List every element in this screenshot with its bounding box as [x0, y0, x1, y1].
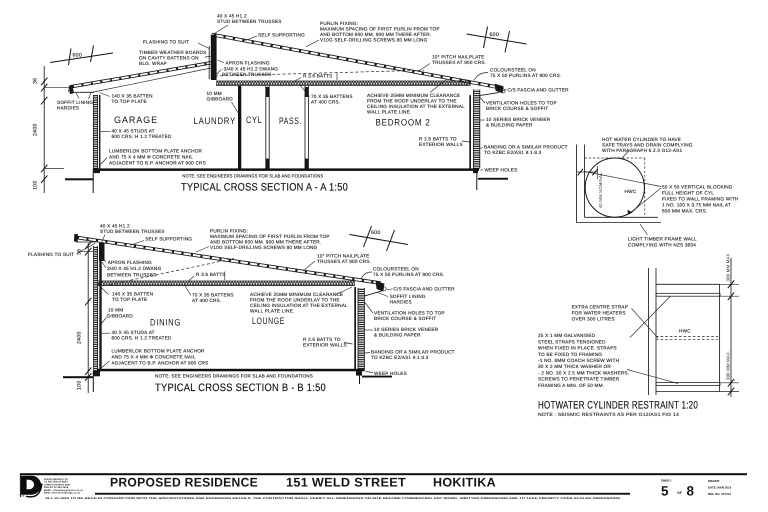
- svg-text:8: 8: [687, 484, 695, 499]
- svg-text:WEB: www.dixondesign.co.nz: WEB: www.dixondesign.co.nz: [44, 492, 81, 495]
- svg-text:TIMBER WEATHER BOARDS: TIMBER WEATHER BOARDS: [139, 50, 206, 55]
- svg-text:LIGHT TIMBER FRAME WALL: LIGHT TIMBER FRAME WALL: [628, 237, 697, 242]
- svg-text:MAXIMUM SPACING OF FIRST PURLI: MAXIMUM SPACING OF FIRST PURLIN FROM TOP: [210, 234, 330, 239]
- svg-text:40 X 45 H1.2: 40 X 45 H1.2: [100, 223, 130, 228]
- svg-text:ACHIEVE 25MM MINIMUM CLEARANCE: ACHIEVE 25MM MINIMUM CLEARANCE: [250, 292, 343, 297]
- svg-text:V10G SELF-DRILLING SCREWS 80 M: V10G SELF-DRILLING SCREWS 80 MM LONG: [210, 245, 318, 250]
- svg-text:TO TOP PLATE: TO TOP PLATE: [112, 297, 147, 302]
- svg-text:BANDING OR A SIMILAR PRODUCT: BANDING OR A SIMILAR PRODUCT: [484, 145, 568, 150]
- svg-text:600 CRS. H 1.2 TREATED: 600 CRS. H 1.2 TREATED: [112, 134, 172, 139]
- svg-text:LUMBERLOK BOTTOM PLATE ANCHOR: LUMBERLOK BOTTOM PLATE ANCHOR: [112, 349, 206, 354]
- svg-text:CYL: CYL: [246, 114, 263, 125]
- svg-text:LOUNGE: LOUNGE: [252, 315, 285, 326]
- svg-text:30 X 2 MM THICK WASHER OR: 30 X 2 MM THICK WASHER OR: [538, 364, 611, 369]
- svg-text:LUMBERLOK BOTTOM PLATE ANCHOR: LUMBERLOK BOTTOM PLATE ANCHOR: [109, 149, 203, 154]
- svg-text:WEEP HOLES: WEEP HOLES: [485, 168, 518, 173]
- svg-text:PASS.: PASS.: [279, 115, 302, 126]
- svg-text:FLASHING TO SUIT: FLASHING TO SUIT: [143, 39, 189, 44]
- svg-text:OF: OF: [677, 491, 683, 495]
- svg-text:25 X 1 MM GALVANISED: 25 X 1 MM GALVANISED: [538, 333, 596, 338]
- svg-text:10 MM: 10 MM: [207, 91, 222, 96]
- svg-text:10 MM: 10 MM: [108, 308, 123, 313]
- svg-text:36: 36: [33, 78, 39, 84]
- svg-text:AND 75 X 4 MM Φ CONCRETE NAIL: AND 75 X 4 MM Φ CONCRETE NAIL: [109, 155, 193, 160]
- svg-text:SELF SUPPORTING: SELF SUPPORTING: [258, 32, 305, 37]
- svg-text:2400: 2400: [77, 331, 83, 344]
- svg-text:MAXIMUM SPACING OF FIRST PURLI: MAXIMUM SPACING OF FIRST PURLIN FROM TOP: [320, 26, 440, 31]
- svg-text:COMPLYING WITH NZS 3604: COMPLYING WITH NZS 3604: [628, 243, 696, 248]
- svg-text:R 2.6 BATTS TO: R 2.6 BATTS TO: [303, 337, 341, 342]
- svg-text:WEEP HOLES: WEEP HOLES: [374, 371, 407, 376]
- svg-text:-1 NO. 8MM COACH SCREW WITH: -1 NO. 8MM COACH SCREW WITH: [538, 358, 619, 363]
- svg-text:40 X 45 STUDS AT: 40 X 45 STUDS AT: [112, 330, 155, 335]
- svg-text:FOR WATER HEATERS: FOR WATER HEATERS: [572, 311, 626, 316]
- svg-text:300 MM MAX.: 300 MM MAX.: [726, 351, 731, 380]
- svg-text:10 SERIES BRICK VENEER: 10 SERIES BRICK VENEER: [374, 327, 439, 332]
- svg-text:ON CAVITY BATTENS ON: ON CAVITY BATTENS ON: [139, 55, 199, 60]
- svg-text:100: 100: [33, 180, 39, 190]
- svg-text:TO BE FIXED TO FRAMING: TO BE FIXED TO FRAMING: [538, 352, 602, 357]
- svg-text:PURLIN FIXING:: PURLIN FIXING:: [320, 21, 358, 26]
- svg-text:HOT WATER CYLINDER TO HAVE: HOT WATER CYLINDER TO HAVE: [602, 137, 681, 142]
- svg-text:50 X 50 VERTICAL BLOCKING: 50 X 50 VERTICAL BLOCKING: [662, 184, 733, 189]
- svg-text:APRON FLASHING: APRON FLASHING: [226, 60, 270, 65]
- svg-text:DATE: MAR 2018: DATE: MAR 2018: [708, 485, 732, 489]
- svg-text:SCREWS TO PENETRATE TIMBER: SCREWS TO PENETRATE TIMBER: [538, 377, 620, 382]
- svg-text:LAUNDRY: LAUNDRY: [194, 115, 237, 126]
- svg-text:75 X 50 PURLINS AT 900 CRS.: 75 X 50 PURLINS AT 900 CRS.: [490, 73, 561, 78]
- svg-text:TRUSSES AT 900 CRS.: TRUSSES AT 900 CRS.: [317, 259, 371, 264]
- svg-text:EXTERIOR WALLS: EXTERIOR WALLS: [303, 343, 347, 348]
- svg-text:SELF SUPPORTING: SELF SUPPORTING: [145, 236, 192, 241]
- svg-text:NOTE: SEE ENGINEERS DRAWINGS F: NOTE: SEE ENGINEERS DRAWINGS FOR SLAB AN…: [182, 174, 323, 179]
- svg-text:BETWEEN TRUSSES: BETWEEN TRUSSES: [222, 72, 272, 77]
- svg-text:10° PITCH NAILPLATE: 10° PITCH NAILPLATE: [432, 54, 484, 59]
- svg-text:TO KZBC E2/AS1 9.1.8.3: TO KZBC E2/AS1 9.1.8.3: [371, 355, 429, 360]
- svg-text:- 2 NO. 30 X 2.5 MM THICK WASH: - 2 NO. 30 X 2.5 MM THICK WASHERS.: [538, 370, 629, 375]
- svg-text:DINING: DINING: [150, 317, 181, 328]
- svg-text:PH/FAX 03 385 2658: PH/FAX 03 385 2658: [44, 486, 69, 489]
- svg-text:C/S FASCIA AND GUTTER: C/S FASCIA AND GUTTER: [508, 87, 570, 92]
- svg-text:SAFE TRAYS AND DRAIN COMPLYING: SAFE TRAYS AND DRAIN COMPLYING: [602, 142, 693, 147]
- svg-text:AND BOTTOM 600 MM. 900 MM THER: AND BOTTOM 600 MM. 900 MM THERE AFTER.: [210, 239, 321, 244]
- svg-text:CEILING INSULATION AT THE EXTE: CEILING INSULATION AT THE EXTERNAL: [367, 104, 465, 109]
- svg-text:R 3.6 BATTS: R 3.6 BATTS: [303, 74, 332, 79]
- svg-text:SHEET:: SHEET:: [661, 479, 672, 483]
- svg-text:EXTERIOR WALLS: EXTERIOR WALLS: [419, 142, 463, 147]
- svg-text:GIBBOARD: GIBBOARD: [207, 96, 234, 101]
- svg-text:151 WELD STREET: 151 WELD STREET: [286, 476, 406, 490]
- svg-text:V10G SELF-DRILLING SCREWS 80 M: V10G SELF-DRILLING SCREWS 80 MM LONG: [320, 37, 428, 42]
- svg-text:PURLIN FIXING:: PURLIN FIXING:: [210, 228, 248, 233]
- svg-text:STUD BETWEEN TRUSSES: STUD BETWEEN TRUSSES: [100, 229, 165, 234]
- svg-text:HOTWATER CYLINDER RESTRAINT 1:: HOTWATER CYLINDER RESTRAINT 1:20: [538, 400, 698, 412]
- svg-text:AT 400 CRS.: AT 400 CRS.: [192, 298, 221, 303]
- svg-text:FLASHING TO SUIT: FLASHING TO SUIT: [28, 252, 74, 257]
- svg-text:ADJACENT TO B.P. ANCHOR AT 900: ADJACENT TO B.P. ANCHOR AT 900 CRS: [109, 160, 206, 165]
- svg-text:SOFFIT LINING: SOFFIT LINING: [390, 294, 426, 299]
- svg-text:40 X 45 STUDS AT: 40 X 45 STUDS AT: [112, 128, 155, 133]
- svg-text:& BUILDING PAPER: & BUILDING PAPER: [374, 333, 421, 338]
- svg-text:NOTE : SEISMIC RESTRAINTS AS P: NOTE : SEISMIC RESTRAINTS AS PER G12/AS1…: [538, 412, 679, 417]
- svg-text:BETWEEN TRUSSES: BETWEEN TRUSSES: [107, 273, 157, 278]
- svg-text:300 MM MAX.: 300 MM MAX.: [726, 252, 731, 281]
- svg-text:2400: 2400: [33, 123, 39, 136]
- svg-text:LTD: LTD: [21, 495, 25, 498]
- svg-text:140 X 35 BATTEN: 140 X 35 BATTEN: [112, 291, 153, 296]
- svg-text:600: 600: [490, 32, 500, 38]
- svg-text:40 X 45 H1.2: 40 X 45 H1.2: [217, 13, 247, 18]
- svg-text:FRAMING A MIN. OF 50 MM.: FRAMING A MIN. OF 50 MM.: [538, 383, 604, 388]
- svg-text:ADJACENT TO B.P. ANCHOR AT 900: ADJACENT TO B.P. ANCHOR AT 900 CRS: [112, 360, 209, 365]
- svg-text:600: 600: [371, 230, 381, 236]
- svg-text:WHEN FIXED IN PLACE. STRAPS: WHEN FIXED IN PLACE. STRAPS: [538, 346, 617, 351]
- svg-text:REF. NO: 201704: REF. NO: 201704: [708, 492, 731, 496]
- svg-text:140 X 35 BATTEN: 140 X 35 BATTEN: [112, 93, 153, 98]
- svg-text:HARDIES: HARDIES: [390, 300, 412, 305]
- svg-text:40 MM NOMINAL: 40 MM NOMINAL: [598, 172, 603, 208]
- svg-text:HARDIES: HARDIES: [57, 105, 79, 110]
- svg-text:600 CRS. H 1.2 TREATED: 600 CRS. H 1.2 TREATED: [112, 336, 172, 341]
- svg-text:FROM THE ROOF UNDERLAY TO THE: FROM THE ROOF UNDERLAY TO THE: [250, 298, 340, 303]
- svg-text:PROPOSED RESIDENCE: PROPOSED RESIDENCE: [110, 476, 258, 490]
- svg-text:100: 100: [77, 380, 83, 390]
- svg-text:75 X 50 PURLINS AT 900 CRS.: 75 X 50 PURLINS AT 900 CRS.: [373, 272, 444, 277]
- svg-text:BANDING OR A SIMILAR PRODUCT: BANDING OR A SIMILAR PRODUCT: [371, 350, 455, 355]
- svg-text:FULL HEIGHT OF CYL: FULL HEIGHT OF CYL: [662, 190, 714, 195]
- svg-text:HWC: HWC: [625, 189, 637, 194]
- svg-text:CHRISTCHURCH 8081: CHRISTCHURCH 8081: [44, 483, 71, 486]
- svg-text:BRICK COURSE & SOFFIT: BRICK COURSE & SOFFIT: [486, 106, 548, 111]
- svg-text:HWC: HWC: [679, 328, 691, 333]
- svg-text:FIXED TO WALL FRAMING WITH: FIXED TO WALL FRAMING WITH: [662, 196, 739, 201]
- svg-text:DIXON DESIGN LTD: DIXON DESIGN LTD: [44, 478, 68, 481]
- svg-text:OVER 300 LITRES: OVER 300 LITRES: [572, 317, 615, 322]
- svg-text:SOFFIT LINING: SOFFIT LINING: [57, 100, 93, 105]
- svg-text:COLOURSTEEL ON: COLOURSTEEL ON: [490, 67, 536, 72]
- svg-text:& BUILDING PAPER: & BUILDING PAPER: [486, 123, 533, 128]
- svg-text:WITH PARAGRAPH 6.2.3 G12-AS1: WITH PARAGRAPH 6.2.3 G12-AS1: [602, 148, 682, 153]
- svg-text:3/40 X 45 H1.2 DWANG: 3/40 X 45 H1.2 DWANG: [107, 266, 162, 271]
- svg-text:NOTE: SEE ENGINEERS DRAWINGS F: NOTE: SEE ENGINEERS DRAWINGS FOR SLAB AN…: [155, 373, 313, 378]
- svg-text:10° PITCH NAILPLATE: 10° PITCH NAILPLATE: [317, 253, 369, 258]
- svg-text:BLG. WRAP: BLG. WRAP: [139, 61, 167, 66]
- svg-text:5: 5: [661, 484, 669, 499]
- svg-text:APRON FLASHING: APRON FLASHING: [108, 260, 152, 265]
- svg-text:STUD BETWEEN TRUSSES: STUD BETWEEN TRUSSES: [217, 19, 282, 24]
- svg-text:C/S FASCIA AND GUTTER: C/S FASCIA AND GUTTER: [394, 286, 456, 291]
- svg-text:WALL PLATE LINE.: WALL PLATE LINE.: [250, 309, 294, 314]
- svg-text:600 MM MAX. CRS.: 600 MM MAX. CRS.: [662, 208, 707, 213]
- svg-text:-3/40 X 45 H1.2 DWANG: -3/40 X 45 H1.2 DWANG: [222, 66, 278, 71]
- svg-text:AND BOTTOM 600 MM. 900 MM THER: AND BOTTOM 600 MM. 900 MM THERE AFTER.: [320, 32, 431, 37]
- svg-text:EMAIL: dixondesign@xtra.co.nz: EMAIL: dixondesign@xtra.co.nz: [44, 489, 84, 492]
- svg-text:CEILING INSULATION AT THE EXTE: CEILING INSULATION AT THE EXTERNAL: [250, 303, 348, 308]
- svg-text:BRICK COURSE & SOFFIT: BRICK COURSE & SOFFIT: [374, 316, 436, 321]
- svg-text:7A PATTEN STREET: 7A PATTEN STREET: [44, 481, 69, 484]
- svg-text:1 NO. 100 X 3.75 MM NAIL AT: 1 NO. 100 X 3.75 MM NAIL AT: [662, 202, 731, 207]
- svg-text:70 X 35 BATTENS: 70 X 35 BATTENS: [311, 94, 353, 99]
- svg-text:GIBBOARD: GIBBOARD: [107, 313, 134, 318]
- svg-text:R 2.6 BATTS TO: R 2.6 BATTS TO: [419, 137, 457, 142]
- svg-text:WALL PLATE LINE.: WALL PLATE LINE.: [367, 110, 411, 115]
- svg-text:TRUSSES AT 900 CRS.: TRUSSES AT 900 CRS.: [432, 60, 486, 65]
- svg-text:TO KZBC E2/AS1 9.1.8.3: TO KZBC E2/AS1 9.1.8.3: [484, 150, 542, 155]
- svg-text:HOKITIKA: HOKITIKA: [433, 476, 496, 490]
- svg-text:ACHIEVE 25MM MINIMUM CLEARANCE: ACHIEVE 25MM MINIMUM CLEARANCE: [367, 93, 460, 98]
- svg-text:COLOURSTEEL ON: COLOURSTEEL ON: [373, 267, 419, 272]
- svg-text:TO TOP PLATE: TO TOP PLATE: [112, 99, 147, 104]
- svg-text:600: 600: [73, 53, 83, 59]
- svg-text:R 3.6 BATTS: R 3.6 BATTS: [196, 272, 225, 277]
- svg-text:STEEL STRAPS TENSIONED: STEEL STRAPS TENSIONED: [538, 339, 606, 344]
- svg-text:FROM THE ROOF UNDERLAY TO THE: FROM THE ROOF UNDERLAY TO THE: [367, 99, 457, 104]
- svg-text:DRAWN:: DRAWN:: [708, 479, 720, 483]
- svg-text:AT 400 CRS.: AT 400 CRS.: [311, 99, 340, 104]
- svg-text:70 X 35 BATTENS: 70 X 35 BATTENS: [192, 293, 234, 298]
- svg-text:AND 75 X 4 MM Φ CONCRETE NAIL: AND 75 X 4 MM Φ CONCRETE NAIL: [112, 354, 196, 359]
- svg-text:TYPICAL CROSS SECTION B - B 1:: TYPICAL CROSS SECTION B - B 1:50: [155, 382, 326, 394]
- svg-text:BEDROOM 2: BEDROOM 2: [376, 116, 431, 127]
- svg-text:VENTILATION HOLES TO TOP: VENTILATION HOLES TO TOP: [374, 311, 445, 316]
- svg-text:VENTILATION HOLES TO TOP: VENTILATION HOLES TO TOP: [486, 101, 557, 106]
- svg-text:GARAGE: GARAGE: [114, 114, 158, 125]
- svg-text:TYPICAL CROSS SECTION A - A 1:: TYPICAL CROSS SECTION A - A 1:50: [181, 182, 348, 194]
- svg-text:ALL PLANS TO BE READ IN CONJUN: ALL PLANS TO BE READ IN CONJUNCTION WITH…: [45, 497, 620, 500]
- svg-text:EXTRA CENTRE STRAP: EXTRA CENTRE STRAP: [572, 305, 628, 310]
- svg-text:10 SERIES BRICK VENEER: 10 SERIES BRICK VENEER: [486, 117, 551, 122]
